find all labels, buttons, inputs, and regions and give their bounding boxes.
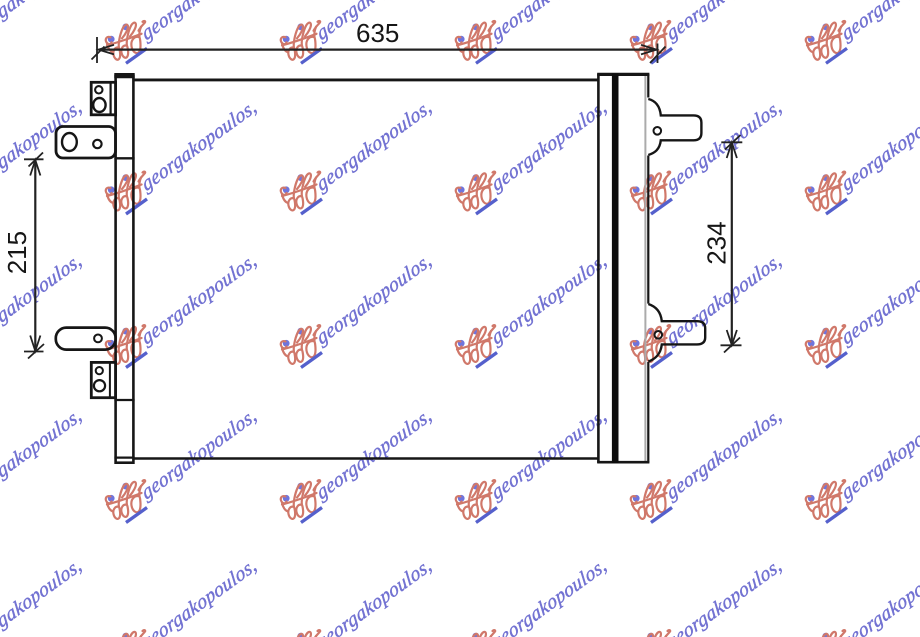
svg-text:635: 635 [356,18,399,48]
svg-text:234: 234 [701,221,731,264]
svg-text:215: 215 [2,231,32,274]
